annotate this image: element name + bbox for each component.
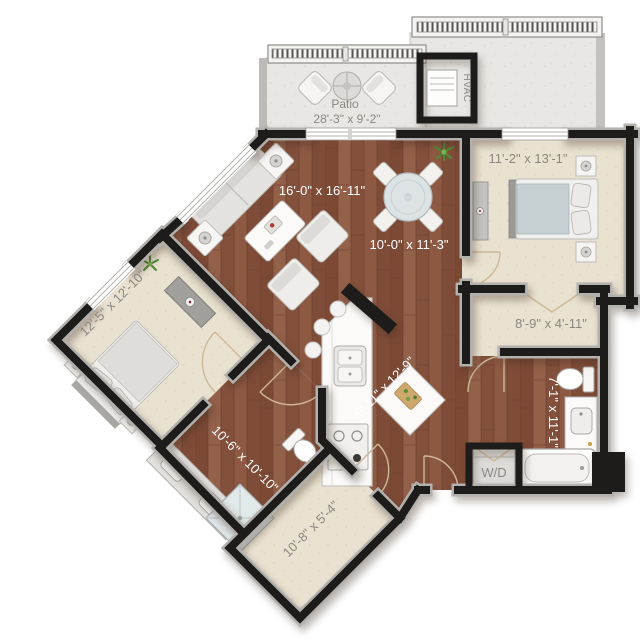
primary-bath-dims-label: 7'-1" x 11'-1" xyxy=(546,376,561,448)
bedroom-closet-dims-label: 8'-9" x 4'-11" xyxy=(515,316,587,331)
patio-dims-label: 28'-3" x 9'-2" xyxy=(313,112,380,126)
nightstand xyxy=(576,156,596,176)
patio-railing xyxy=(412,17,602,37)
living-dims-label: 16'-0" x 16'-11" xyxy=(279,183,366,198)
dresser xyxy=(473,182,488,240)
patio-table xyxy=(333,72,361,100)
bathtub xyxy=(519,449,595,487)
washer-dryer: W/D xyxy=(473,449,515,487)
kitchen-sink xyxy=(334,346,366,386)
window xyxy=(502,128,568,140)
bed-primary xyxy=(509,179,598,239)
patio-edge-wall xyxy=(259,58,267,136)
patio-slider-door xyxy=(306,128,396,140)
hvac-label: HVAC xyxy=(461,73,472,102)
vanity-sink xyxy=(565,397,597,452)
dining-table xyxy=(384,173,432,221)
patio-railing xyxy=(268,45,426,63)
dining-dims-label: 10'-0" x 11'-3" xyxy=(370,237,449,252)
floor-plan-page: W/D xyxy=(0,0,640,640)
patio-name-label: Patio xyxy=(331,97,359,111)
nightstand xyxy=(576,242,596,262)
hvac-unit: HVAC xyxy=(427,70,472,106)
washer-dryer-label: W/D xyxy=(481,465,506,480)
primary-bedroom-dims-label: 11'-2" x 13'-1" xyxy=(489,151,568,166)
floor-plan: W/D xyxy=(0,0,640,640)
patio-edge-wall xyxy=(596,33,605,134)
